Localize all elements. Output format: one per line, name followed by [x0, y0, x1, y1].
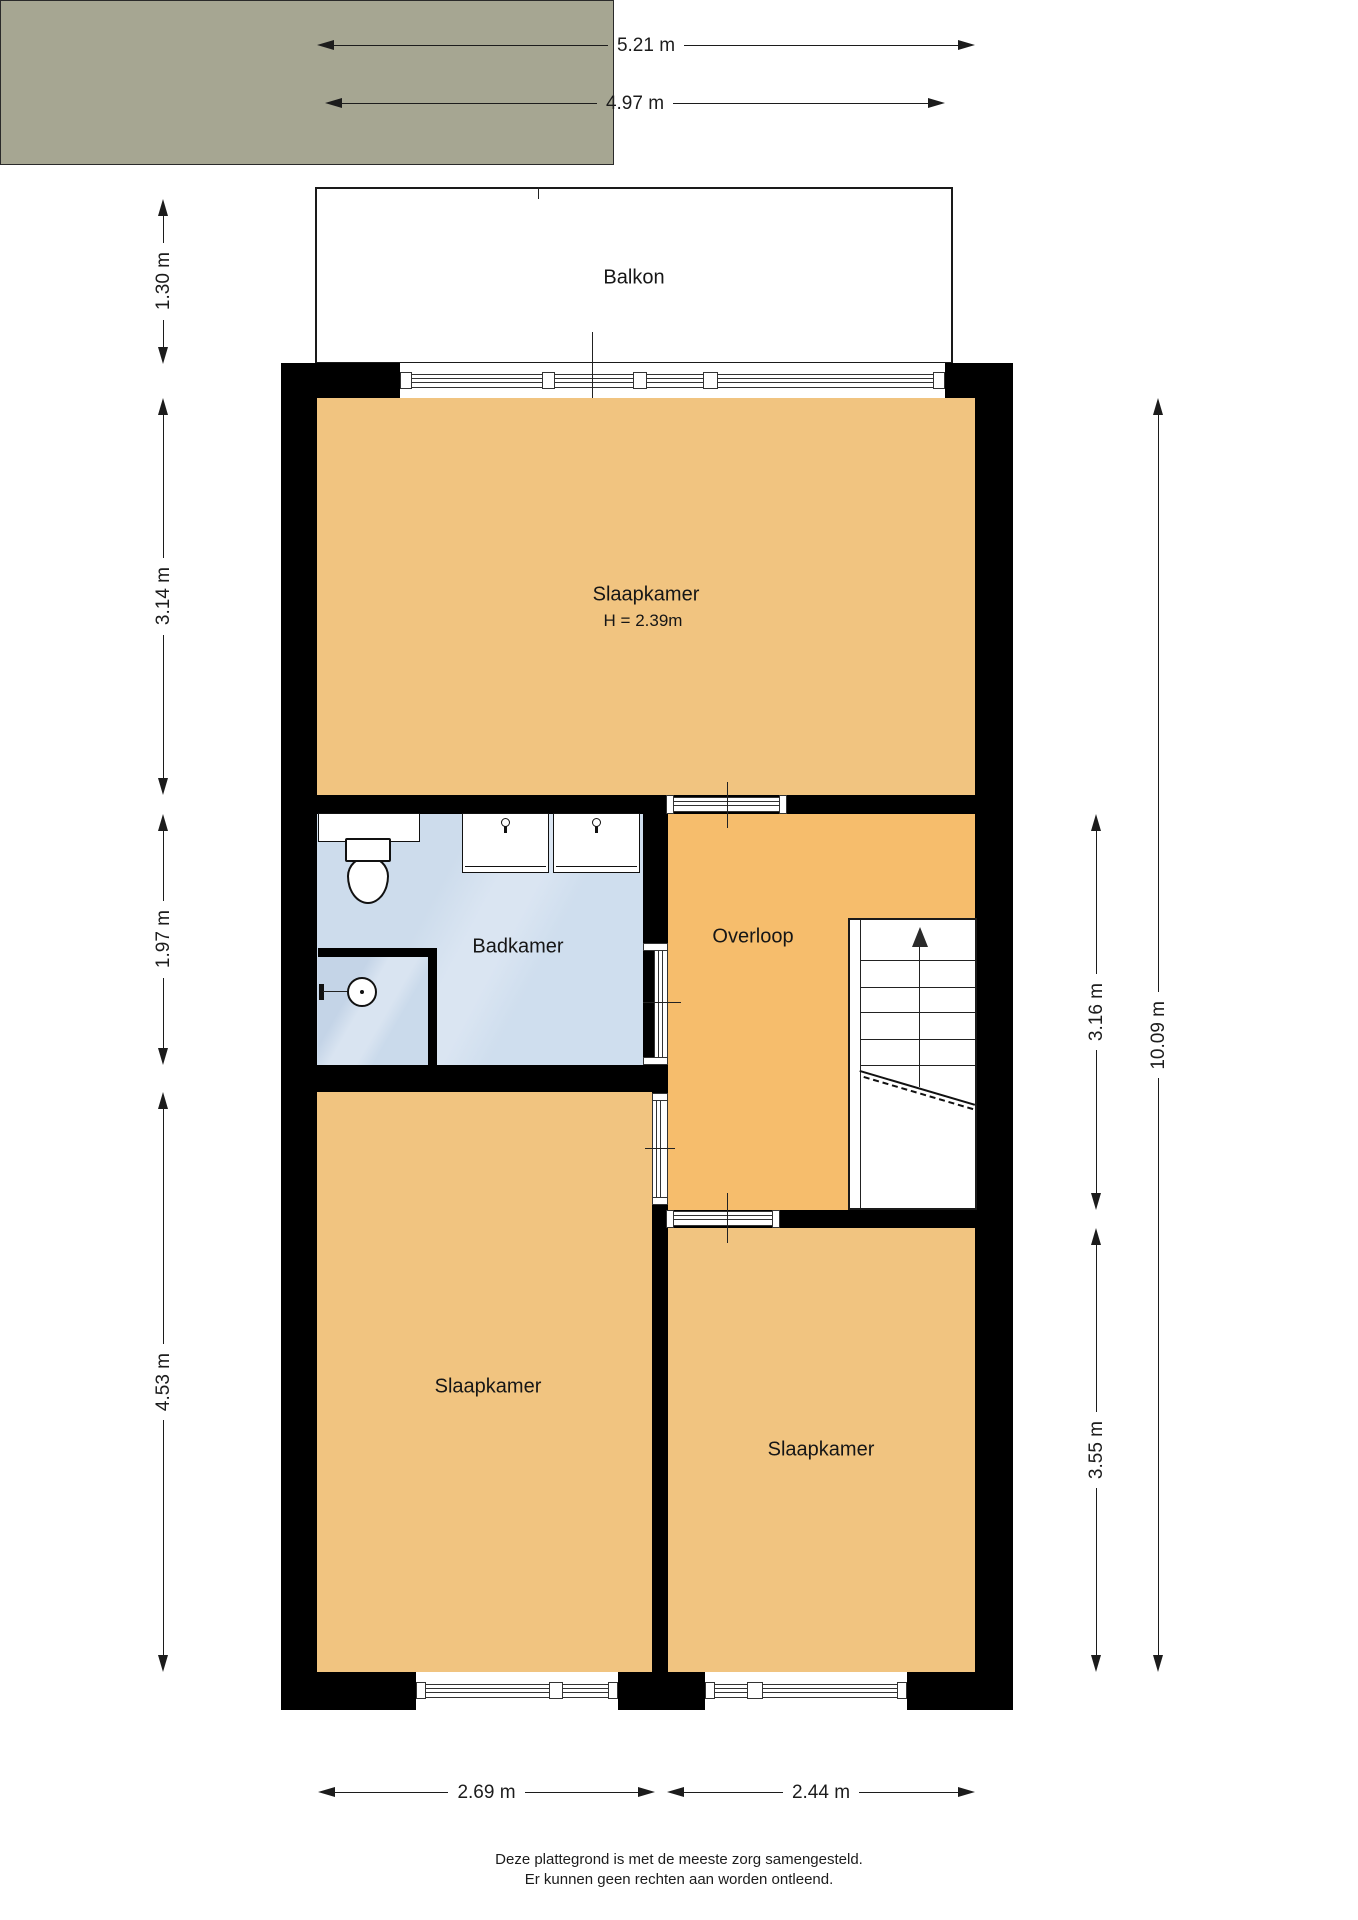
- top-window-glazing: [400, 374, 945, 388]
- arrow-right-icon: [928, 98, 945, 108]
- top-window-mullion-2: [633, 372, 647, 389]
- dimension-label: 2.69 m: [448, 1783, 524, 1802]
- door-slaapkamerlinks-centerline: [645, 1148, 675, 1149]
- wall-bedroom-bathroom: [317, 795, 975, 814]
- arrow-down-icon: [158, 1048, 168, 1065]
- arrow-down-icon: [158, 1655, 168, 1672]
- wall-top-right-corner: [945, 363, 1013, 398]
- disclaimer-line-2: Er kunnen geen rechten aan worden ontlee…: [0, 1870, 1358, 1890]
- balcony-floor: [0, 0, 614, 165]
- balcony-railing-seam: [538, 187, 539, 199]
- dimension-width-bedroom-left: 2.69 m: [318, 1781, 655, 1803]
- dimension-label: 1.97 m: [153, 901, 174, 977]
- stair-direction-line: [919, 945, 920, 1087]
- wall-bottom-left-corner: [281, 1672, 416, 1710]
- bottom-window-right-mullion: [747, 1682, 763, 1699]
- shower-arm-icon: [323, 991, 349, 992]
- bottom-window-right-glazing: [705, 1684, 907, 1698]
- dimension-height-bedroom-left: 4.53 m: [152, 1092, 174, 1672]
- top-window-mullion-1: [542, 372, 555, 389]
- door-badkamer-overloop-jamb-a: [643, 943, 668, 951]
- door-slaapkamerlinks-jamb-a: [652, 1093, 668, 1101]
- arrow-left-icon: [667, 1787, 684, 1797]
- bottom-window-left-mullion: [549, 1682, 563, 1699]
- floorplan-canvas: Balkon: [0, 0, 1358, 1920]
- door-slaapkamerlinks-jamb-b: [652, 1197, 668, 1205]
- room-label-balkon: Balkon: [603, 267, 664, 290]
- arrow-right-icon: [958, 1787, 975, 1797]
- faucet-stem-icon: [595, 826, 598, 833]
- washbasin-right-edge: [556, 866, 637, 867]
- dimension-height-bedroom-right: 3.55 m: [1085, 1228, 1107, 1672]
- room-label-slaapkamer-rechts: Slaapkamer: [768, 1439, 875, 1462]
- arrow-up-icon: [1091, 814, 1101, 831]
- top-window-jamb-left: [400, 372, 412, 389]
- door-badkamer-overloop: [654, 950, 668, 1058]
- dimension-label: 4.97 m: [597, 94, 673, 113]
- arrow-down-icon: [158, 347, 168, 364]
- arrow-left-icon: [325, 98, 342, 108]
- arrow-down-icon: [1153, 1655, 1163, 1672]
- dimension-label: 3.55 m: [1086, 1412, 1107, 1488]
- shower-cabin: [318, 948, 437, 1065]
- wall-badkamer-slaapkamer: [281, 1065, 668, 1092]
- door-slaapkamer-overloop-centerline: [727, 782, 728, 828]
- wall-top-left-corner: [281, 363, 400, 398]
- arrow-right-icon: [638, 1787, 655, 1797]
- dimension-label: 4.53 m: [153, 1344, 174, 1420]
- top-window-jamb-right: [933, 372, 945, 389]
- washbasin-left-edge: [465, 866, 546, 867]
- disclaimer-line-1: Deze plattegrond is met de meeste zorg s…: [0, 1850, 1358, 1870]
- arrow-up-icon: [1091, 1228, 1101, 1245]
- arrow-right-icon: [958, 40, 975, 50]
- room-label-slaapkamer-boven: Slaapkamer: [593, 584, 700, 607]
- door-overloop-slaapkamerrechts-centerline: [727, 1193, 728, 1243]
- stair-up-arrow-icon: [912, 927, 928, 947]
- door-badkamer-overloop-centerline: [643, 1002, 681, 1003]
- dimension-width-bedroom-right: 2.44 m: [667, 1781, 975, 1803]
- room-label-overloop: Overloop: [712, 926, 793, 949]
- stair-tread: [860, 960, 975, 961]
- dimension-label: 2.44 m: [783, 1783, 859, 1802]
- door-overloop-slaapkamerrechts-jamb-b: [772, 1210, 780, 1228]
- bottom-window-left-jamb-b: [608, 1682, 618, 1699]
- bottom-window-left-jamb-a: [416, 1682, 426, 1699]
- dimension-label: 10.09 m: [1148, 992, 1169, 1079]
- dimension-label: 5.21 m: [608, 36, 684, 55]
- dimension-width-balcony: 4.97 m: [325, 92, 945, 114]
- wall-left: [281, 363, 317, 1710]
- arrow-up-icon: [1153, 398, 1163, 415]
- stair-break-line: [859, 1070, 975, 1106]
- arrow-up-icon: [158, 398, 168, 415]
- wall-bottom-right-corner: [907, 1672, 1013, 1710]
- disclaimer: Deze plattegrond is met de meeste zorg s…: [0, 1850, 1358, 1890]
- arrow-left-icon: [318, 1787, 335, 1797]
- arrow-left-icon: [317, 40, 334, 50]
- stair-tread: [860, 1039, 975, 1040]
- faucet-stem-icon: [504, 826, 507, 833]
- room-height-note: H = 2.39m: [604, 611, 683, 631]
- arrow-up-icon: [158, 199, 168, 216]
- staircase: [848, 918, 977, 1210]
- stair-tread: [860, 1012, 975, 1013]
- toilet-tank: [345, 838, 391, 862]
- dimension-width-total: 5.21 m: [317, 34, 975, 56]
- bottom-window-right-jamb-b: [897, 1682, 907, 1699]
- dimension-height-total: 10.09 m: [1147, 398, 1169, 1672]
- bottom-window-left-glazing: [416, 1684, 618, 1698]
- door-slaapkamer-overloop-jamb-b: [779, 795, 787, 814]
- arrow-down-icon: [1091, 1655, 1101, 1672]
- dimension-label: 1.30 m: [153, 243, 174, 319]
- bottom-window-right-jamb-a: [705, 1682, 715, 1699]
- stair-tread: [860, 987, 975, 988]
- arrow-up-icon: [158, 1092, 168, 1109]
- stair-stringer: [860, 920, 861, 1208]
- wall-bottom-center-pier: [618, 1672, 705, 1710]
- room-label-slaapkamer-links: Slaapkamer: [435, 1376, 542, 1399]
- room-label-badkamer: Badkamer: [472, 936, 563, 959]
- wall-right: [975, 363, 1013, 1710]
- dimension-height-overloop: 3.16 m: [1085, 814, 1107, 1210]
- stair-tread: [860, 1065, 975, 1066]
- top-window-mullion-3: [703, 372, 718, 389]
- arrow-up-icon: [158, 814, 168, 831]
- door-badkamer-overloop-jamb-b: [643, 1057, 668, 1065]
- dimension-height-bathroom: 1.97 m: [152, 814, 174, 1065]
- arrow-down-icon: [158, 778, 168, 795]
- door-overloop-slaapkamerrechts: [673, 1211, 773, 1226]
- shower-head-dot-icon: [360, 990, 364, 994]
- door-overloop-slaapkamerrechts-jamb-a: [666, 1210, 674, 1228]
- dimension-label: 3.16 m: [1086, 974, 1107, 1050]
- dimension-depth-balcony: 1.30 m: [152, 199, 174, 364]
- dimension-height-bedroom-top: 3.14 m: [152, 398, 174, 795]
- dimension-label: 3.14 m: [153, 558, 174, 634]
- door-slaapkamer-overloop-jamb-a: [666, 795, 674, 814]
- shower-valve-icon: [319, 984, 324, 1000]
- arrow-down-icon: [1091, 1193, 1101, 1210]
